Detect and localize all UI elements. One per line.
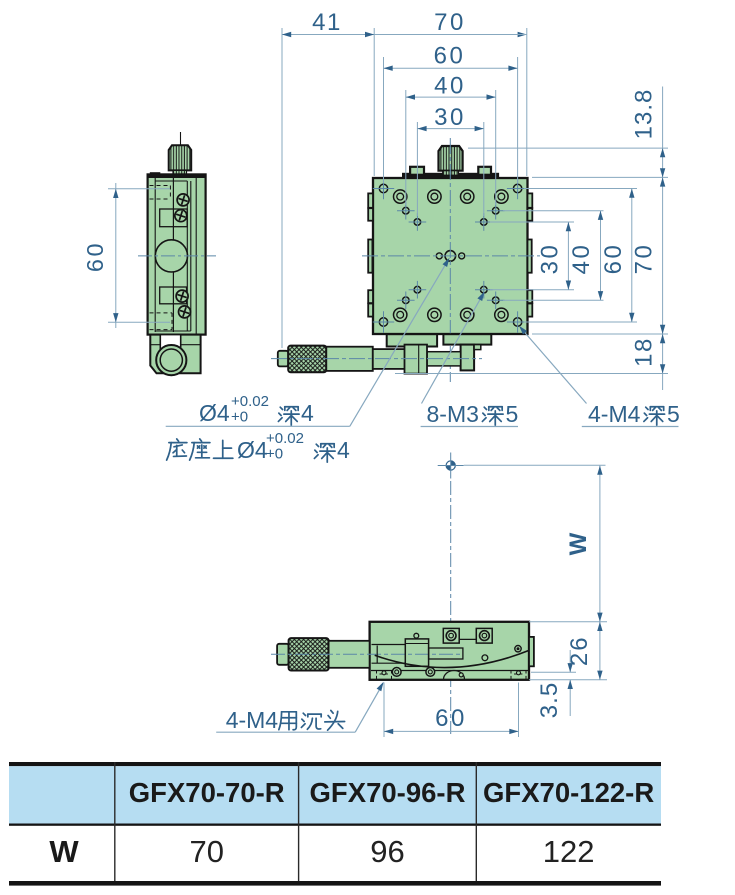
svg-text:18: 18 xyxy=(631,337,658,367)
svg-text:GFX70-96-R: GFX70-96-R xyxy=(310,777,466,808)
svg-text:60: 60 xyxy=(600,243,627,275)
svg-text:GFX70-122-R: GFX70-122-R xyxy=(483,777,654,808)
svg-text:+0: +0 xyxy=(266,446,283,463)
svg-text:3.5: 3.5 xyxy=(536,682,563,718)
svg-text:60: 60 xyxy=(434,43,466,70)
svg-text:+0: +0 xyxy=(231,409,248,426)
svg-text:41: 41 xyxy=(312,9,342,36)
svg-text:W: W xyxy=(49,834,79,869)
svg-text:4-M4: 4-M4 xyxy=(588,401,641,427)
svg-text:+0.02: +0.02 xyxy=(231,393,269,410)
svg-text:70: 70 xyxy=(434,9,466,36)
svg-text:5: 5 xyxy=(667,401,680,427)
svg-text:4: 4 xyxy=(301,400,314,426)
svg-text:W: W xyxy=(565,532,592,555)
svg-text:60: 60 xyxy=(82,241,108,272)
svg-text:122: 122 xyxy=(543,834,595,869)
svg-text:30: 30 xyxy=(537,243,564,275)
svg-text:8-M3: 8-M3 xyxy=(427,401,479,427)
svg-text:30: 30 xyxy=(434,104,466,131)
svg-text:4: 4 xyxy=(337,437,350,463)
svg-text:Ø4: Ø4 xyxy=(199,400,230,426)
svg-text:4-M4: 4-M4 xyxy=(226,707,279,733)
svg-text:40: 40 xyxy=(568,243,595,275)
svg-text:40: 40 xyxy=(434,72,466,99)
svg-text:Ø4: Ø4 xyxy=(237,437,268,463)
svg-text:5: 5 xyxy=(506,401,519,427)
svg-text:70: 70 xyxy=(189,834,223,869)
svg-text:13.8: 13.8 xyxy=(631,89,658,140)
svg-text:70: 70 xyxy=(631,243,658,275)
svg-text:60: 60 xyxy=(435,705,467,732)
svg-text:+0.02: +0.02 xyxy=(266,430,304,447)
svg-text:GFX70-70-R: GFX70-70-R xyxy=(129,777,285,808)
svg-text:96: 96 xyxy=(370,834,404,869)
